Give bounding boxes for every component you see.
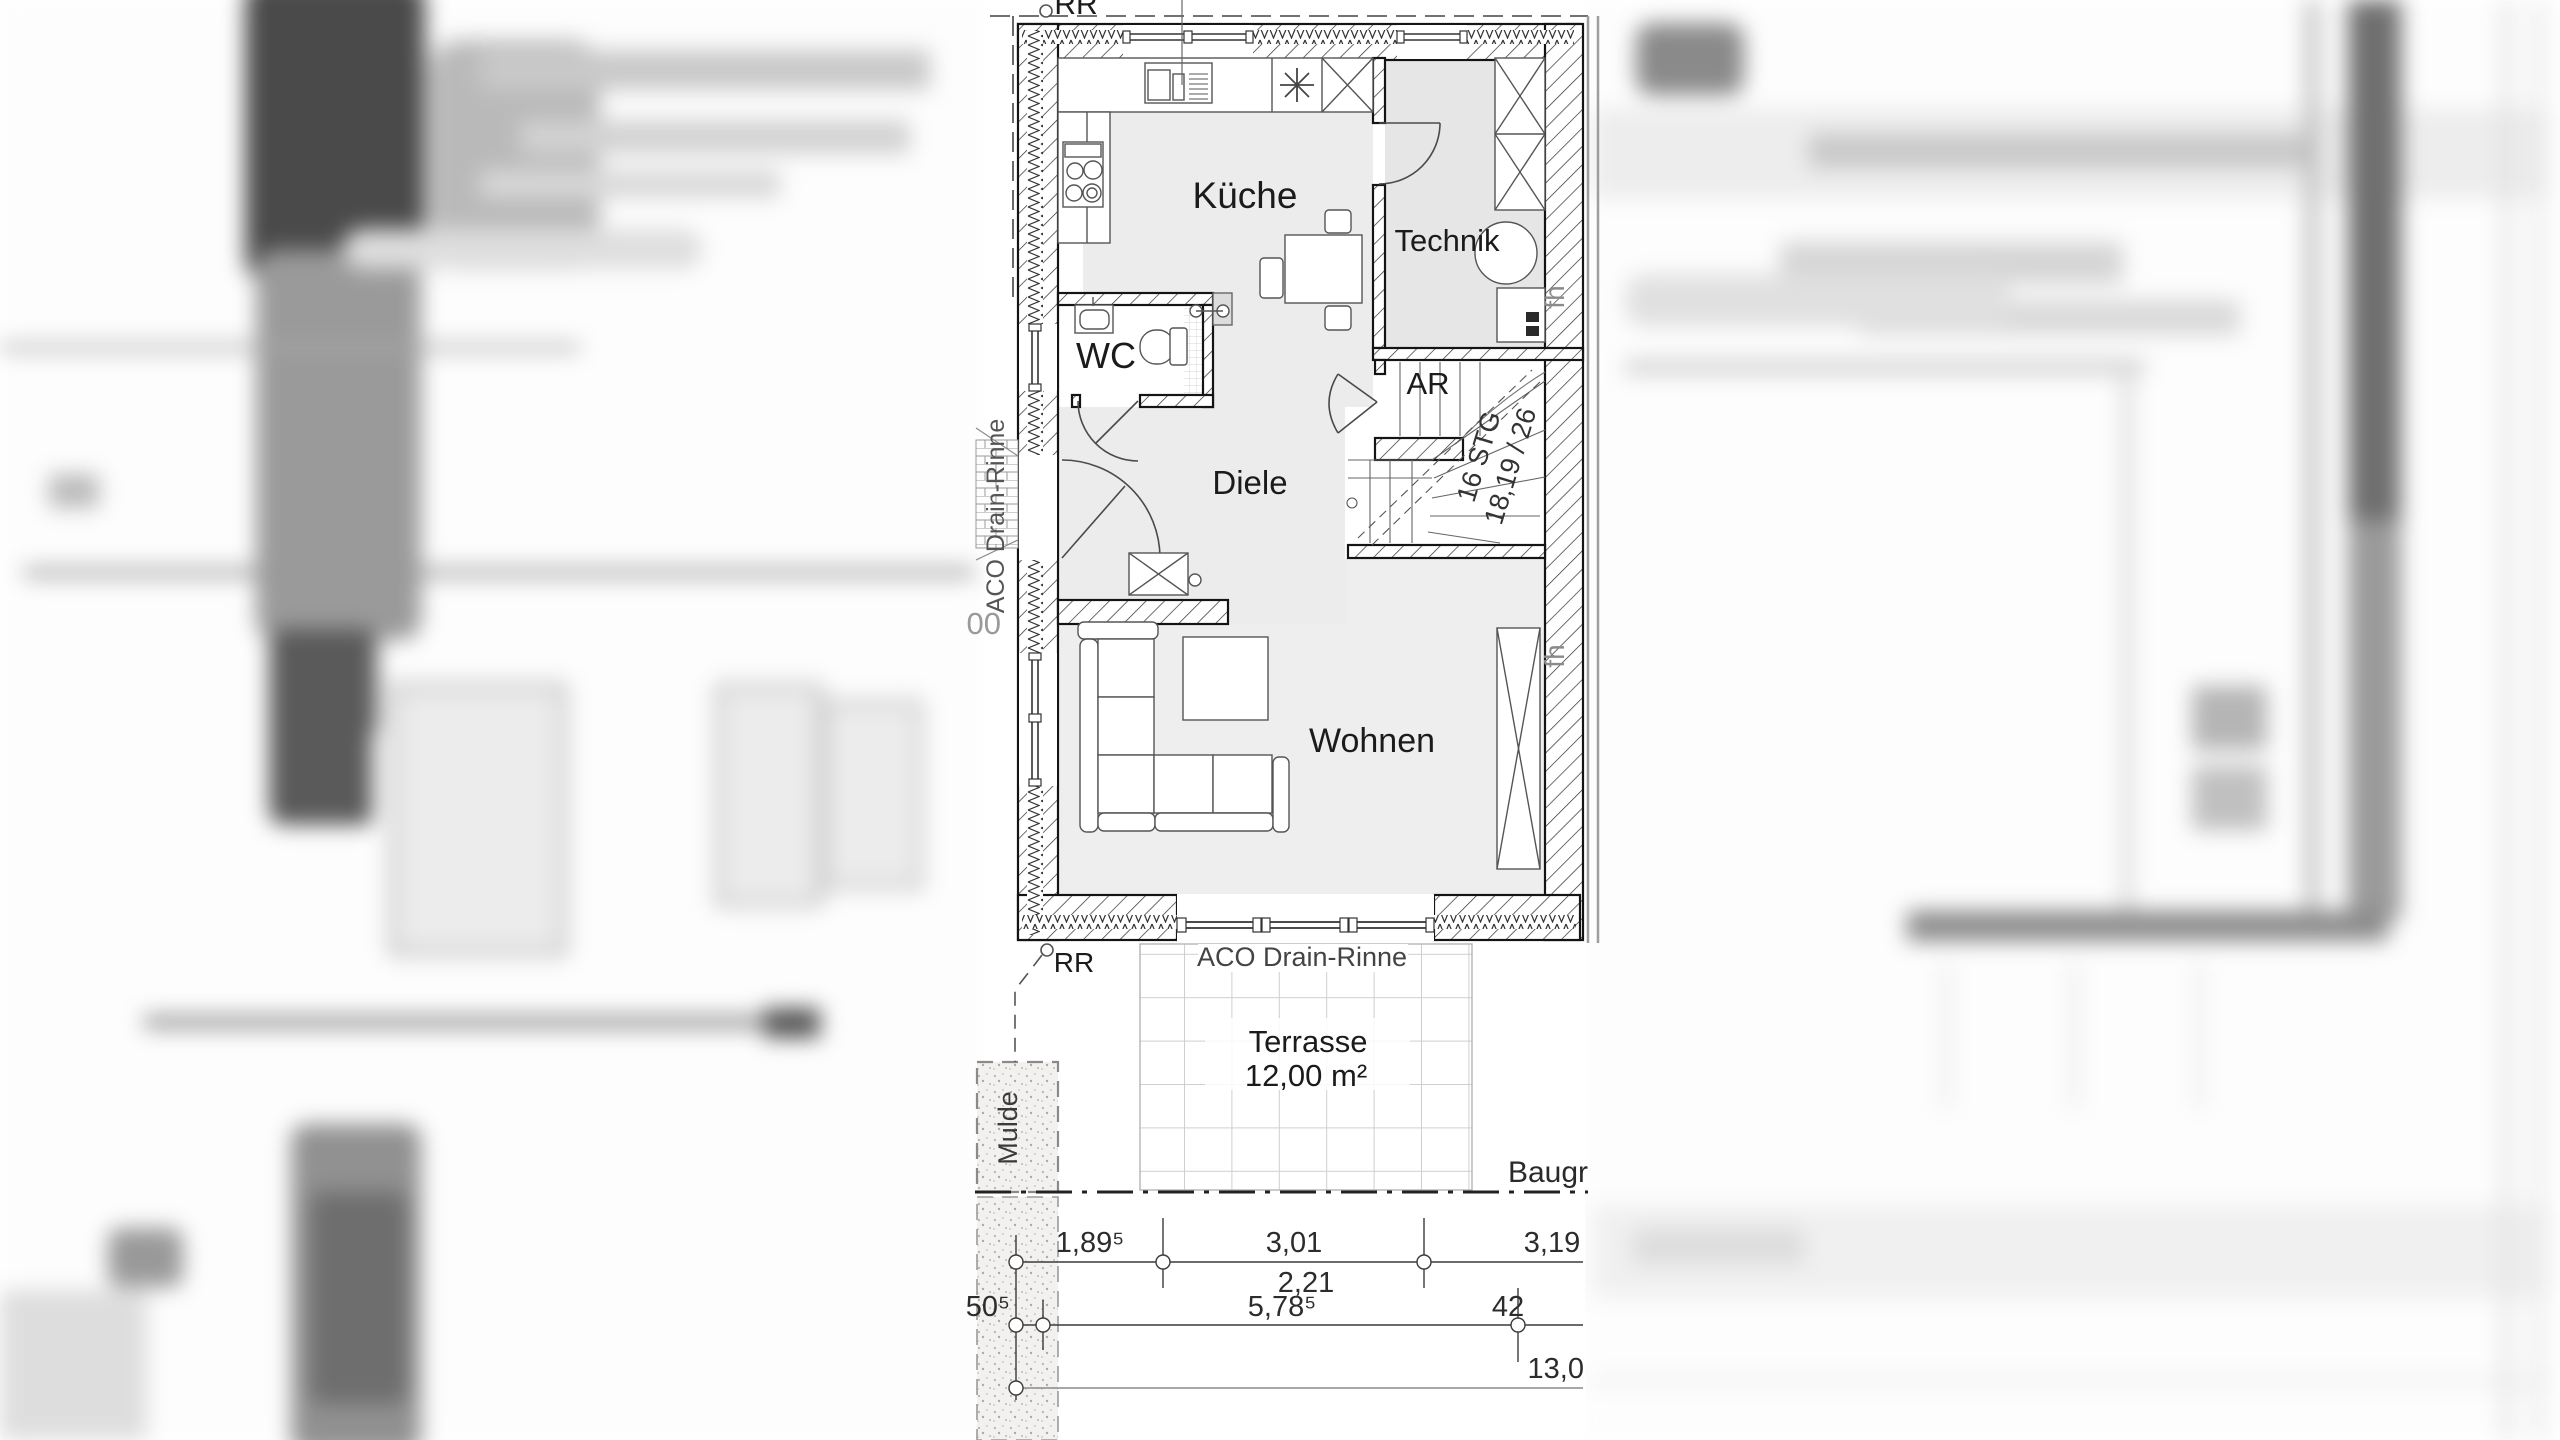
window-left-wohnen: [1019, 653, 1057, 786]
dim-3-19: 3,19: [1524, 1227, 1580, 1259]
wall-kueche-technik-a: [1373, 58, 1385, 123]
dim-3-01: 3,01: [1266, 1227, 1322, 1259]
chair-icon: [1325, 210, 1351, 233]
right-wall-outer-lines: [1588, 16, 1598, 943]
window-top-technik: [1397, 25, 1467, 59]
chair-icon: [1260, 258, 1283, 298]
aco-label-left: ACO Drain-Rinne: [982, 419, 1010, 614]
fh-label-lower: fh: [1539, 644, 1570, 667]
window-left-wc: [1019, 324, 1057, 391]
entrance-opening: [1019, 455, 1057, 560]
coffee-table-icon: [1183, 637, 1268, 720]
room-label-wohnen: Wohnen: [1309, 722, 1435, 760]
wall-wc-bottom: [1140, 395, 1213, 407]
table-icon: [1285, 235, 1362, 303]
sink-icon: [1145, 63, 1212, 103]
wall-stair-wohnen: [1348, 545, 1545, 558]
room-label-wc: WC: [1076, 335, 1136, 376]
room-label-ar: AR: [1406, 366, 1449, 401]
diele-floor: [1058, 407, 1345, 600]
terrasse-area-label: 12,00 m²: [1245, 1058, 1367, 1093]
wohnen-floor-upper: [1345, 558, 1545, 624]
kueche-floor-notch: [1083, 243, 1110, 293]
technik-cabinet-icon: [1495, 58, 1545, 210]
dim-42: 42: [1492, 1291, 1524, 1323]
baugrenze-label: Baugr: [1508, 1156, 1588, 1189]
toilet-icon: [1140, 328, 1187, 365]
room-label-diele: Diele: [1212, 464, 1287, 501]
wall-wc-top: [1058, 293, 1213, 305]
dim-5-78-5: 5,78⁵: [1248, 1291, 1316, 1323]
terrasse-label: Terrasse: [1249, 1024, 1368, 1059]
stove-icon: [1063, 142, 1103, 207]
kitchen-counter-top: [1058, 58, 1373, 112]
room-label-kueche: Küche: [1193, 175, 1298, 216]
rr-label-bottom: RR: [1054, 947, 1094, 978]
wall-right: [1545, 24, 1583, 940]
room-label-technik: Technik: [1394, 223, 1500, 258]
rr-leader-top: [1040, 5, 1052, 17]
dim-13-0: 13,0: [1528, 1353, 1584, 1385]
wall-wc-right: [1203, 305, 1213, 407]
wall-technik-bottom: [1373, 348, 1583, 360]
partial-dimension-left: 00: [967, 606, 1001, 641]
diele-passage-floor: [1228, 600, 1345, 624]
screenshot-root: 16 STG 18,19 / 26: [0, 0, 2560, 1440]
wall-diele-wohnen: [1058, 600, 1228, 624]
fh-label-upper: fh: [1539, 285, 1570, 308]
wall-kueche-technik-b: [1373, 185, 1385, 348]
diele-floor-mid: [1213, 325, 1373, 407]
mulde-label: Mulde: [993, 1091, 1023, 1165]
wall-ar-left-stub: [1375, 360, 1385, 374]
rr-label-top: RR: [1054, 0, 1097, 21]
floor-plan: 16 STG 18,19 / 26: [0, 0, 2560, 1440]
washing-machine-icon: [1497, 288, 1545, 342]
dim-50-5: 50⁵: [966, 1291, 1010, 1323]
hob-symbol-icon: [1280, 68, 1314, 102]
aco-label-bottom: ACO Drain-Rinne: [1197, 942, 1407, 972]
dim-1-89-5: 1,89⁵: [1056, 1227, 1124, 1259]
window-top-kueche: [1123, 25, 1253, 59]
sliding-door-terrace: [1177, 894, 1434, 941]
sideboard-icon: [1497, 628, 1540, 869]
chair-icon: [1325, 306, 1351, 330]
